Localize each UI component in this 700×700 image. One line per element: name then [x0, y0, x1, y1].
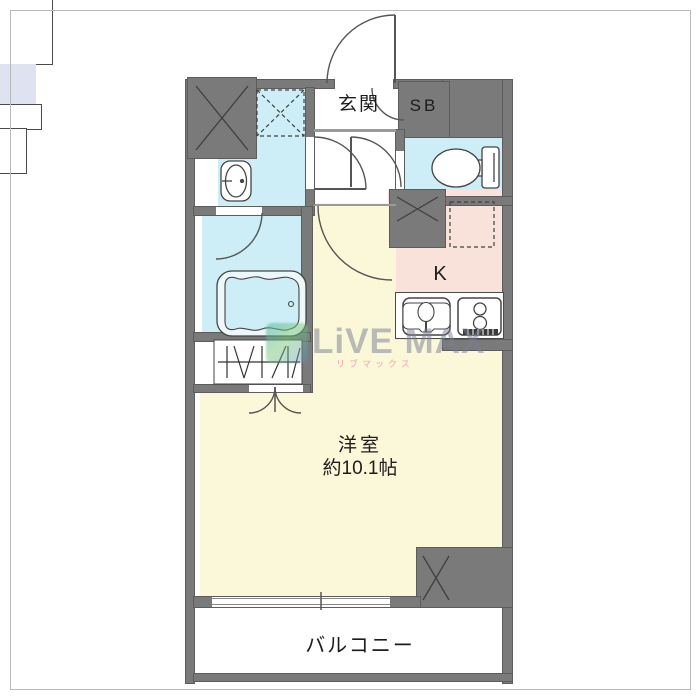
toilet-doorway	[396, 151, 404, 191]
wall-mass-top-right	[443, 80, 512, 137]
main-room-label: 洋室	[298, 436, 422, 457]
wall-mass-bottom-right	[417, 548, 512, 607]
balcony-railing	[194, 674, 512, 681]
watermark-brand-sub: リブマックス	[336, 357, 414, 370]
main-room-size-label: 約10.1帖	[298, 459, 422, 480]
shaft-frame-top-left	[188, 78, 256, 158]
balcony-window	[212, 597, 390, 607]
shaft-frame-kitchen	[390, 190, 445, 247]
entrance-label: 玄関	[316, 95, 402, 116]
balcony-label: バルコニー	[278, 635, 442, 657]
bathroom-floor	[202, 215, 310, 333]
closet-opening	[249, 385, 303, 392]
hall-room-threshold	[314, 204, 396, 206]
entrance-step-edge	[314, 129, 396, 132]
washroom-doorway	[306, 137, 314, 189]
shoebox-label: SB	[402, 97, 446, 116]
wall-left	[186, 80, 194, 683]
floor-plan-canvas: 玄関 SB K 洋室 約10.1帖 バルコニー LiVE MAX リブマックス	[0, 0, 700, 700]
watermark-brand: LiVE MAX	[312, 322, 485, 362]
toilet-floor	[404, 137, 504, 197]
bathroom-doorway	[216, 207, 262, 215]
kitchen-label: K	[423, 263, 457, 285]
watermark: LiVE MAX リブマックス	[264, 320, 494, 368]
watermark-logo-icon	[266, 323, 308, 363]
